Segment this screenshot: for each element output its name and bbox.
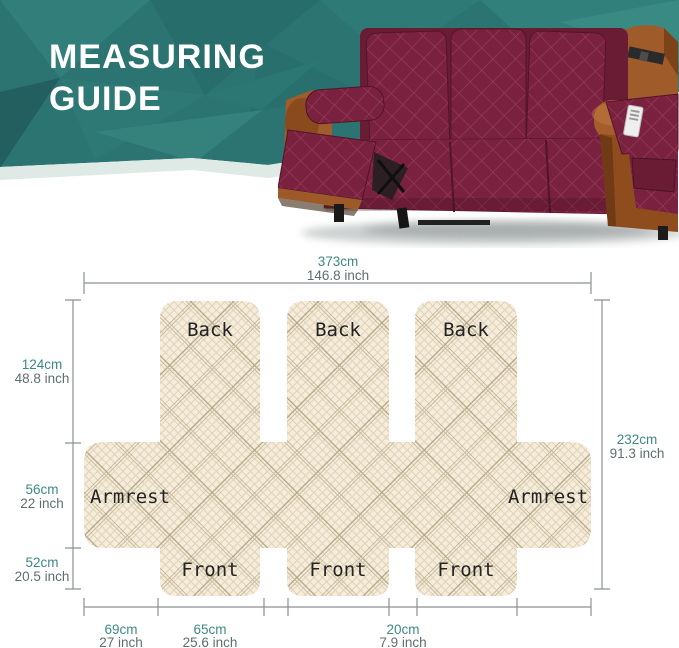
armrest-label-left: Armrest (90, 486, 170, 508)
dim-bottom1-inch: 27 inch (99, 635, 143, 648)
title-line-2: GUIDE (49, 78, 266, 120)
back-cushion-right (526, 31, 606, 152)
back-cushion-middle (451, 29, 526, 149)
cover-outline-shape (84, 301, 591, 596)
dim-top-cm: 373cm (318, 254, 359, 269)
dim-line-left (65, 300, 81, 589)
back-panel-label-3: Back (443, 319, 489, 341)
back-panel-label-2: Back (315, 319, 361, 341)
measuring-guide-page: MEASURING GUIDE (0, 0, 679, 648)
dim-line-bottom (84, 598, 591, 616)
back-cushions (366, 29, 606, 153)
title-line-1: MEASURING (49, 36, 266, 78)
armrest-label-right: Armrest (508, 486, 588, 508)
front-panel-label-2: Front (309, 559, 366, 581)
front-panel-label-3: Front (437, 559, 494, 581)
front-panel-label-1: Front (181, 559, 238, 581)
dim-right-cm: 232cm (617, 432, 658, 447)
dim-left3-cm: 52cm (25, 555, 58, 570)
dim-line-right (594, 300, 610, 589)
dim-bottom2-inch: 25.6 inch (183, 635, 238, 648)
dim-left3-inch: 20.5 inch (15, 569, 70, 584)
page-title: MEASURING GUIDE (49, 36, 266, 120)
dim-left1-cm: 124cm (22, 357, 63, 372)
side-pocket (632, 158, 676, 192)
measuring-diagram: Back Back Back Armrest Armrest Front Fro… (0, 238, 679, 648)
dim-top-inch: 146.8 inch (307, 268, 369, 283)
dim-right-inch: 91.3 inch (610, 446, 665, 461)
sofa-illustration (278, 2, 679, 248)
right-armrest (592, 94, 678, 240)
dim-left2-cm: 56cm (25, 482, 58, 497)
back-panel-label-1: Back (187, 319, 233, 341)
armrest-cover-left (305, 85, 385, 124)
dim-left1-inch: 48.8 inch (15, 371, 70, 386)
dim-left2-inch: 22 inch (20, 496, 64, 511)
dim-bottom3-inch: 7.9 inch (379, 635, 426, 648)
